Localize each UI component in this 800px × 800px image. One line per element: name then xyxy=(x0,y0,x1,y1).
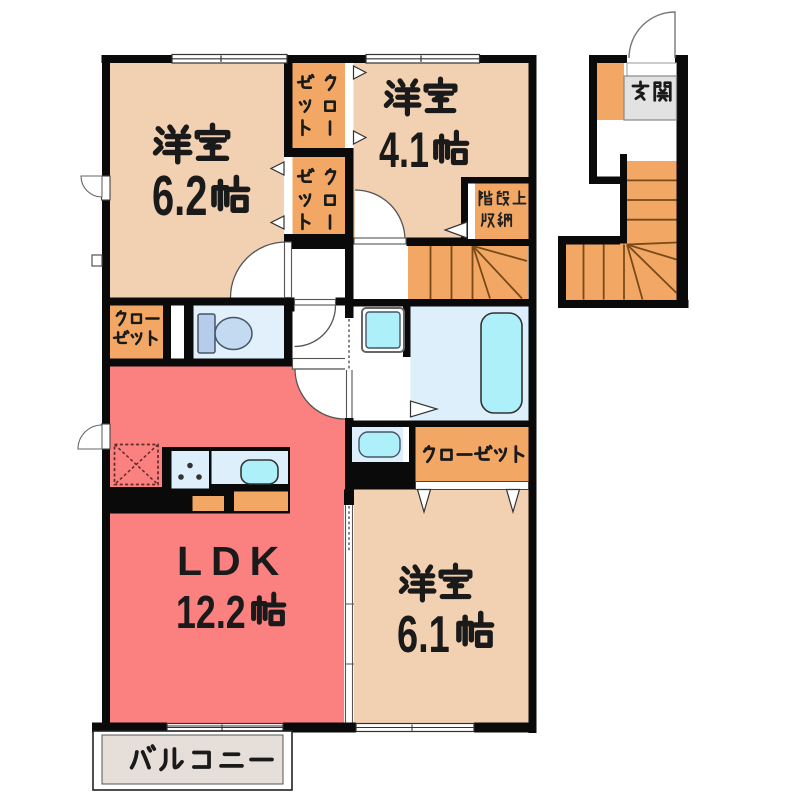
svg-text:6.1: 6.1 xyxy=(397,605,450,663)
svg-text:LDK: LDK xyxy=(177,538,288,584)
svg-text:6.2: 6.2 xyxy=(152,164,207,228)
svg-text:4.1: 4.1 xyxy=(379,123,429,178)
svg-text:12.2: 12.2 xyxy=(176,585,246,638)
